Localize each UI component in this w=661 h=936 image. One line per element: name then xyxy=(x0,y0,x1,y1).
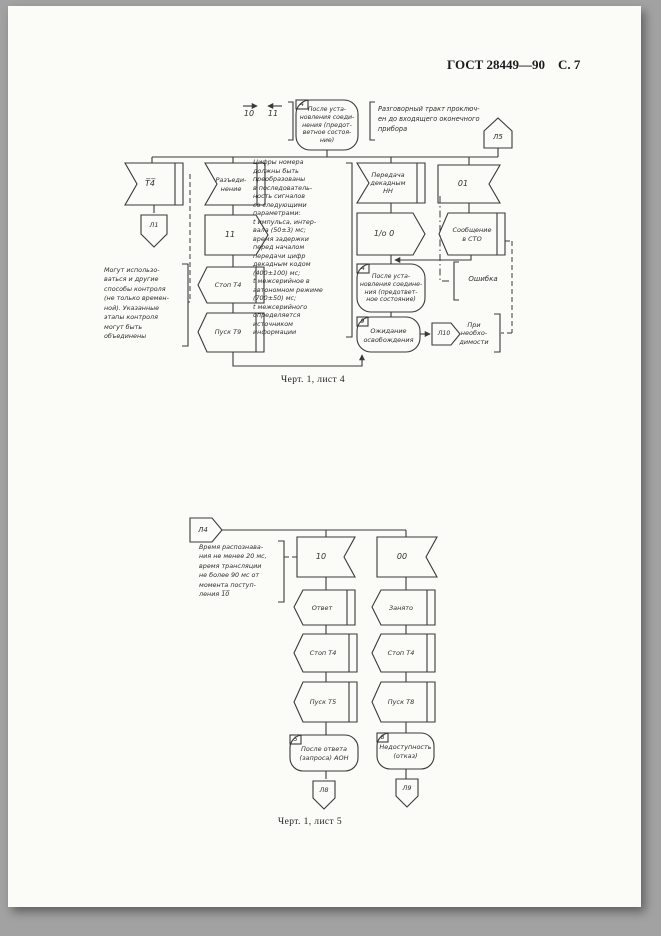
connector-l10-label: Л10 xyxy=(432,325,456,343)
block-otvet-label: Ответ xyxy=(301,593,343,623)
pri-neobkhodimosti-note: При необхо- димости xyxy=(455,320,493,347)
timing-note: Время распознава- ния не менее 20 мс, вр… xyxy=(199,543,283,599)
state8-text: Недоступность (отказ) xyxy=(377,737,434,766)
connector-l9-label: Л9 xyxy=(395,780,419,796)
flag-razjedinenie-label: Разъеди- нение xyxy=(209,166,253,203)
bracket-signals xyxy=(288,102,293,140)
flag-01-label: 01 xyxy=(442,168,484,200)
state4b-text: После уста- новления соедине- ния (предо… xyxy=(358,267,424,310)
bracket-oshibka xyxy=(454,262,459,300)
block-pusk-t9-label: Пуск Т9 xyxy=(204,315,252,350)
state4-top-text: После уста- новления соеди- нения (предо… xyxy=(297,103,357,148)
bracket-talk-note xyxy=(370,102,375,140)
link-sto-junction xyxy=(395,255,471,260)
signal-10-label: 10 xyxy=(240,108,258,120)
connector-l1-label: Л1 xyxy=(141,216,167,234)
state9-text: Ожидание освобождения xyxy=(358,321,419,350)
block-stop-t4-left-label: Стоп Т4 xyxy=(301,637,345,670)
flag-10-label: 10 xyxy=(300,545,342,569)
flag-peredacha-label: Передача декадным НН xyxy=(362,166,414,200)
flag-00-label: 00 xyxy=(380,545,424,569)
bracket-left-note xyxy=(182,264,188,346)
block-1o0-label: 1/о 0 xyxy=(359,216,409,252)
bracket-pri-note xyxy=(494,314,500,352)
block-pusk-t5-label: Пуск Т5 xyxy=(301,685,345,719)
figure-caption-sheet5: Черт. 1, лист 5 xyxy=(278,817,342,827)
link-puskt9-to-state9 xyxy=(233,352,362,366)
flag-t4-label: Т̅4̅ xyxy=(128,167,172,201)
connector-l8-label: Л8 xyxy=(312,782,336,798)
figure-caption-sheet4: Черт. 1, лист 4 xyxy=(281,375,345,385)
block-stop-t4-label: Стоп Т4 xyxy=(204,269,252,301)
connector-l5-label: Л5 xyxy=(486,129,510,146)
signal-11-label: 11 xyxy=(264,108,282,120)
block-pusk-t8-label: Пуск Т8 xyxy=(379,685,423,719)
block-soobshchenie-label: Сообщение в СТО xyxy=(449,217,495,252)
left-methods-note: Могут использо- ваться и другие способы … xyxy=(104,266,182,342)
scanned-page: ГОСТ 28449—90 С. 7 xyxy=(0,0,661,936)
params-note: Цифры номера должны быть преобразованы в… xyxy=(253,158,351,337)
state5-text: После ответа (запроса) АОН xyxy=(291,739,357,768)
oshibka-label: Ошибка xyxy=(463,272,503,286)
block-11-label: 11 xyxy=(207,218,253,252)
connector-l4-label: Л4 xyxy=(190,521,216,539)
talk-path-note: Разговорный тракт проключ- ен до входяще… xyxy=(378,104,480,135)
block-zanyato-label: Занято xyxy=(379,593,423,623)
bus-line-sheet5 xyxy=(222,530,406,537)
block-stop-t4-right-label: Стоп Т4 xyxy=(379,637,423,670)
